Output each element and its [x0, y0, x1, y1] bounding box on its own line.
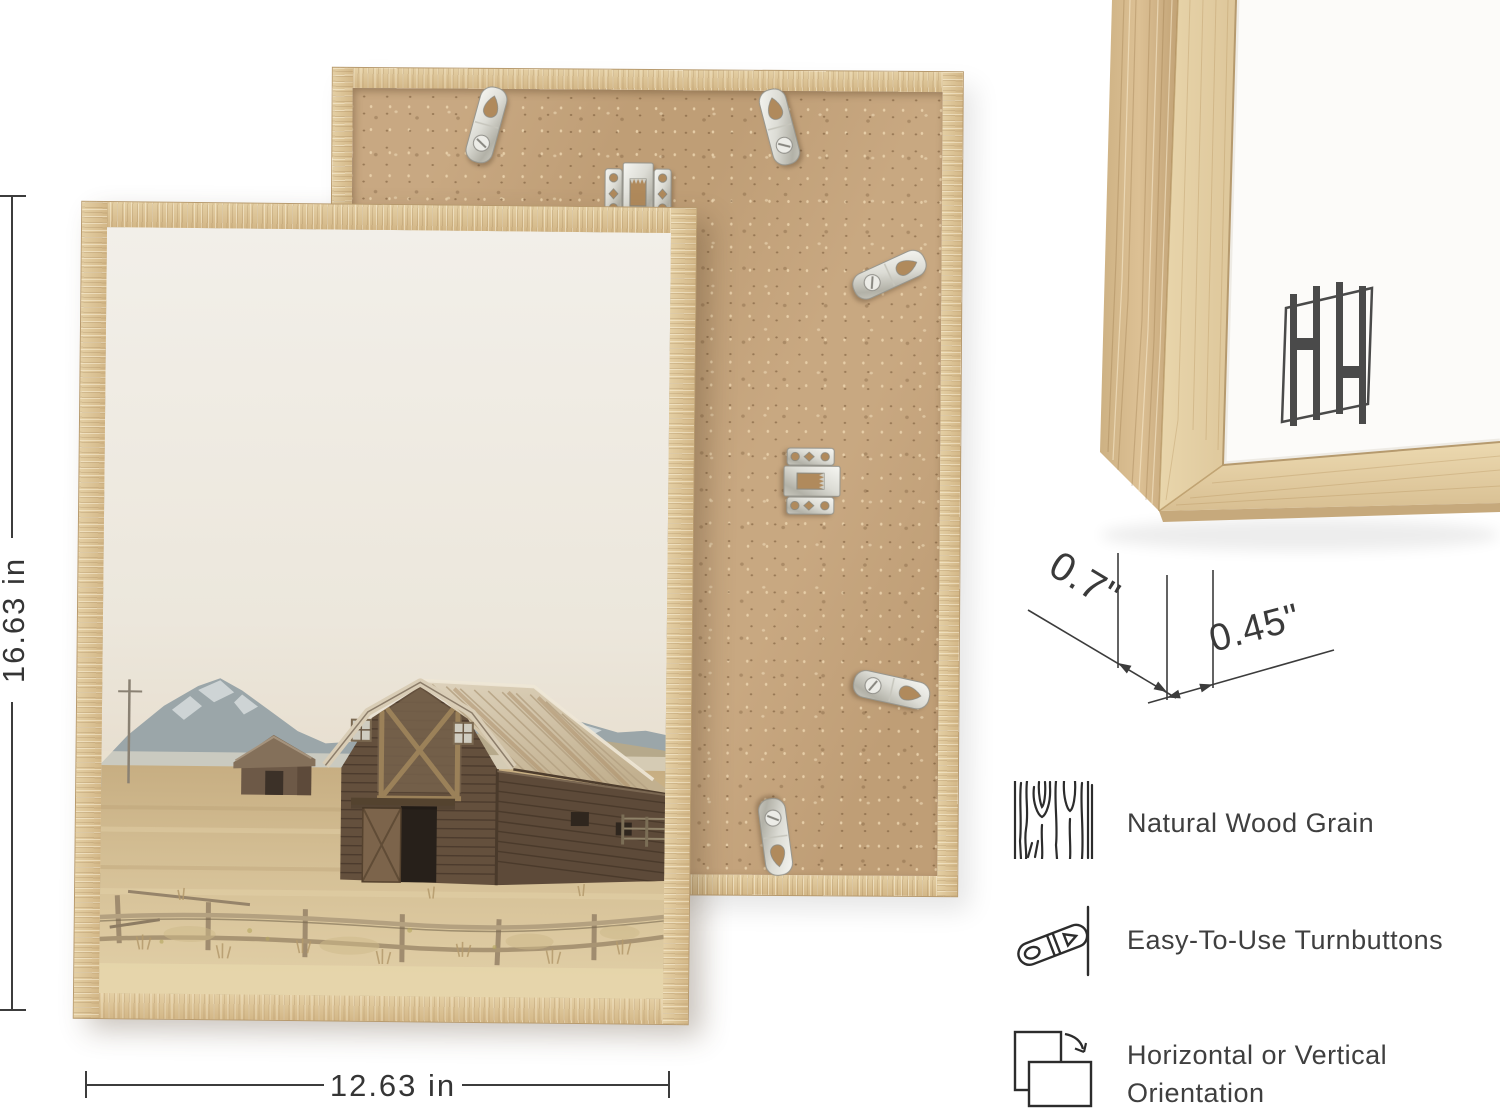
barn-photo [99, 227, 671, 999]
feature-label-wood-grain: Natural Wood Grain [1127, 808, 1374, 839]
width-dimension-label: 12.63 in [330, 1068, 456, 1104]
feature-label-orientation-line1: Horizontal or Vertical [1127, 1040, 1387, 1071]
height-dimension-tick-top [0, 195, 26, 197]
height-dimension-label: 16.63 in [0, 557, 32, 683]
frame-front-view [74, 202, 697, 1024]
face-dimension-label: 0.45" [1205, 596, 1305, 660]
feature-label-turnbuttons: Easy-To-Use Turnbuttons [1127, 925, 1443, 956]
width-dimension-tick-right [668, 1071, 670, 1098]
orientation-icon [1013, 1028, 1095, 1108]
width-dimension-line-right [462, 1084, 669, 1086]
product-image: 16.63 in 12.63 in [0, 0, 1500, 1110]
feature-label-orientation-line2: Orientation [1127, 1078, 1265, 1109]
height-dimension-line-lower [11, 702, 13, 1010]
dimension-arrows [1116, 659, 1215, 702]
wood-grain-icon [1012, 781, 1094, 859]
turnbutton-icon [1008, 905, 1096, 977]
sawtooth-hanger [783, 447, 841, 515]
depth-dimension-label: 0.7" [1042, 543, 1128, 619]
corner-frame-shadow [1100, 519, 1500, 551]
frame-corner-view: 0.7" 0.45" [1000, 0, 1500, 730]
height-dimension-tick-bottom [0, 1009, 26, 1011]
height-dimension-line-upper [11, 196, 13, 538]
width-dimension-line-left [86, 1084, 324, 1086]
